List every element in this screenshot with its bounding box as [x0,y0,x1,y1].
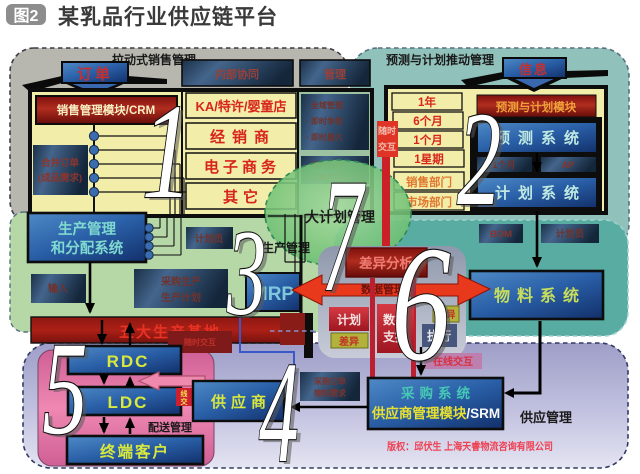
svg-text:某乳品行业供应链平台: 某乳品行业供应链平台 [58,5,278,29]
svg-text:合并订单: 合并订单 [41,157,80,169]
svg-text:6: 6 [391,213,450,396]
svg-text:信息: 信息 [519,62,549,77]
svg-text:其它: 其它 [223,188,263,206]
svg-text:和分配系统: 和分配系统 [51,239,124,257]
svg-text:LDC: LDC [108,393,149,412]
svg-text:预测系统: 预测系统 [495,129,587,147]
svg-text:交: 交 [181,397,189,406]
svg-text:交互: 交互 [378,141,396,152]
svg-text:采购订单: 采购订单 [313,376,346,386]
svg-text:图2: 图2 [14,7,39,25]
svg-text:3: 3 [226,205,266,341]
svg-text:差异: 差异 [339,335,359,348]
svg-text:管理: 管理 [324,67,346,81]
svg-text:1星期: 1星期 [414,152,443,166]
svg-text:6个月: 6个月 [413,114,442,128]
svg-text:RDC: RDC [107,352,150,371]
svg-text:经销商: 经销商 [210,128,276,146]
svg-text:随时: 随时 [378,125,396,136]
svg-text:采购生产: 采购生产 [160,275,201,288]
svg-text:物料需求: 物料需求 [314,388,347,398]
svg-text:1个月: 1个月 [413,133,442,147]
svg-text:· 全域管理: · 全域管理 [306,100,343,110]
svg-text:7: 7 [321,145,366,325]
svg-text:销售管理模块/CRM: 销售管理模块/CRM [57,103,155,117]
svg-text:· 即时最大: · 即时最大 [306,132,343,142]
svg-text:生产计划: 生产计划 [161,291,201,304]
svg-text:线: 线 [181,389,188,398]
svg-text:4: 4 [259,333,299,474]
svg-text:内部协同: 内部协同 [215,67,259,81]
svg-text:1: 1 [142,77,193,228]
svg-text:供应管理: 供应管理 [519,410,572,425]
svg-text:计划员: 计划员 [195,233,224,245]
svg-text:订单: 订单 [77,65,113,83]
svg-text:输入: 输入 [48,282,68,295]
svg-text:(成品需求): (成品需求) [38,172,82,184]
svg-text:· 即时争取: · 即时争取 [306,116,343,126]
svg-text:配送管理: 配送管理 [148,420,192,434]
svg-text:随时交互: 随时交互 [184,337,216,347]
svg-text:AP: AP [562,160,575,170]
svg-text:销售部门: 销售部门 [406,175,452,189]
svg-text:1年: 1年 [418,95,436,109]
svg-text:预测与计划模块: 预测与计划模块 [496,100,577,114]
svg-text:KA/特许/婴童店: KA/特许/婴童店 [195,99,286,114]
svg-text:计划系统: 计划系统 [495,184,587,202]
svg-text:供应商管理模块/SRM: 供应商管理模块/SRM [371,405,500,421]
svg-text:计划员: 计划员 [556,228,585,240]
svg-text:预测与计划推动管理: 预测与计划推动管理 [386,52,494,67]
svg-text:版权：邱伏生 上海天睿物流咨询有限公司: 版权：邱伏生 上海天睿物流咨询有限公司 [387,440,553,453]
svg-text:5: 5 [42,314,87,462]
svg-text:2: 2 [457,83,501,233]
svg-text:电子商务: 电子商务 [204,158,280,176]
svg-text:生产管理: 生产管理 [58,220,116,238]
svg-text:物料系统: 物料系统 [494,286,586,305]
svg-text:市场部门: 市场部门 [406,195,452,209]
svg-text:终端客户: 终端客户 [100,442,170,461]
